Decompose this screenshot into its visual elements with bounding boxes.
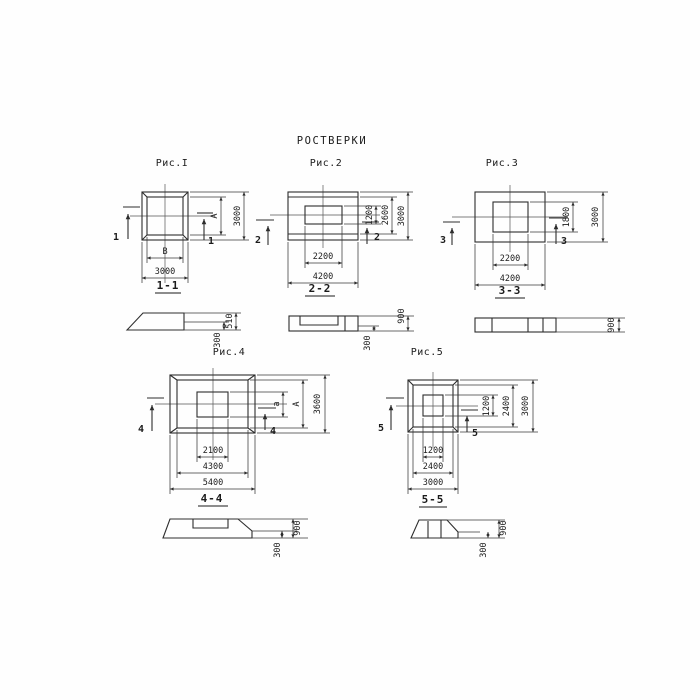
fig3-section-total-height: 900 bbox=[607, 317, 617, 332]
fig2-cut-mark-right: 2 bbox=[374, 232, 380, 243]
fig5-section-title: 5-5 bbox=[422, 493, 445, 506]
fig4-section-view: 300 900 bbox=[163, 519, 308, 558]
fig3-cut-mark-left: 3 bbox=[440, 235, 446, 246]
fig1-dim-outer-height: 3000 bbox=[233, 206, 243, 226]
fig1-section-profile bbox=[127, 313, 184, 330]
fig4-dim-mid-width: 4300 bbox=[203, 462, 223, 472]
fig5-cut-mark-left: 5 bbox=[378, 423, 384, 434]
fig1-section-edge-height: 300 bbox=[213, 332, 223, 347]
fig5-cut-marks: 5 5 bbox=[378, 398, 478, 439]
fig5-dim-outer-width: 3000 bbox=[423, 478, 443, 488]
fig1-section-view: 300 510 bbox=[127, 313, 241, 348]
fig5-section-edge-height: 300 bbox=[479, 542, 489, 557]
fig1-caption: Рис.I bbox=[156, 158, 189, 169]
rostverki-drawing: РОСТВЕРКИ Рис.I А 3000 В bbox=[0, 0, 700, 700]
fig2-section-profile bbox=[289, 316, 358, 331]
fig3: Рис.3 1800 3000 2200 4200 3 bbox=[440, 158, 625, 333]
fig4-section-edge-height: 300 bbox=[273, 542, 283, 557]
fig4: Рис.4 а А 3600 2100 4300 bbox=[138, 347, 330, 558]
fig2-dim-outer-width: 4200 bbox=[313, 272, 333, 282]
fig2-section-edge-height: 300 bbox=[363, 335, 373, 350]
fig3-caption: Рис.3 bbox=[486, 158, 519, 169]
fig1-section-title: 1-1 bbox=[157, 279, 180, 292]
fig1-dim-outer-width: 3000 bbox=[155, 267, 175, 277]
fig5-section-profile bbox=[411, 520, 458, 538]
fig4-dim-outer-height: 3600 bbox=[313, 394, 323, 414]
fig2-dim-inner-width: 2200 bbox=[313, 252, 333, 262]
fig2-dim-outer-height: 3000 bbox=[397, 206, 407, 226]
fig4-dim-inner-height: а bbox=[272, 401, 282, 406]
fig2-dim-mid-height: 2600 bbox=[381, 205, 391, 225]
fig1-dim-inner-height: А bbox=[210, 213, 220, 218]
fig2-section-view: 300 900 bbox=[289, 308, 414, 350]
fig1-cut-mark-right: 1 bbox=[208, 236, 214, 247]
fig5-section-total-height: 900 bbox=[499, 520, 509, 535]
fig2: Рис.2 1200 2600 3000 2200 4200 bbox=[255, 158, 414, 351]
fig2-section-total-height: 900 bbox=[397, 308, 407, 323]
fig2-caption: Рис.2 bbox=[310, 158, 343, 169]
fig4-recess-contour bbox=[197, 392, 228, 417]
fig3-dim-outer-height: 3000 bbox=[591, 207, 601, 227]
fig1-cut-marks: 1 1 bbox=[113, 207, 214, 247]
fig4-dim-inner-width: 2100 bbox=[203, 446, 223, 456]
fig3-section-title: 3-3 bbox=[499, 284, 522, 297]
fig5-cut-mark-right: 5 bbox=[472, 428, 478, 439]
fig2-plan bbox=[270, 185, 380, 248]
fig1-dimensions: А 3000 В 3000 bbox=[142, 192, 249, 283]
fig2-cut-mark-left: 2 bbox=[255, 235, 261, 246]
fig5-dim-mid-width: 2400 bbox=[423, 462, 443, 472]
fig3-dim-inner-height: 1800 bbox=[562, 207, 572, 227]
drawing-sheet: РОСТВЕРКИ Рис.I А 3000 В bbox=[0, 0, 700, 700]
fig2-section-title: 2-2 bbox=[309, 282, 332, 295]
fig5-dim-mid-height: 2400 bbox=[502, 396, 512, 416]
fig1-cut-mark-left: 1 bbox=[113, 232, 119, 243]
fig3-section-profile bbox=[475, 318, 556, 332]
fig1-section-total-height: 510 bbox=[225, 313, 235, 328]
fig4-section-title: 4-4 bbox=[201, 492, 224, 505]
fig3-dim-inner-width: 2200 bbox=[500, 254, 520, 264]
fig5-dim-inner-height: 1200 bbox=[482, 396, 492, 416]
fig5-dim-inner-width: 1200 bbox=[423, 446, 443, 456]
fig3-section-view: 900 bbox=[475, 317, 625, 332]
fig5-dim-outer-height: 3000 bbox=[521, 396, 531, 416]
fig4-caption: Рис.4 bbox=[213, 347, 246, 358]
fig3-dim-outer-width: 4200 bbox=[500, 274, 520, 284]
fig4-cut-mark-right: 4 bbox=[270, 426, 276, 437]
fig5: Рис.5 1200 2400 3000 1200 2400 bbox=[378, 347, 538, 558]
fig5-caption: Рис.5 bbox=[411, 347, 444, 358]
fig1: Рис.I А 3000 В 3000 bbox=[113, 158, 249, 348]
fig3-cut-mark-right: 3 bbox=[561, 236, 567, 247]
fig3-dimensions: 1800 3000 2200 4200 bbox=[475, 192, 608, 290]
sheet-title: РОСТВЕРКИ bbox=[297, 135, 367, 147]
fig4-dim-outer-width: 5400 bbox=[203, 478, 223, 488]
fig4-section-total-height: 900 bbox=[293, 520, 303, 535]
fig4-dim-mid-height: А bbox=[292, 401, 302, 406]
fig4-dimensions: а А 3600 2100 4300 5400 bbox=[170, 375, 330, 494]
fig1-dim-inner-width: В bbox=[162, 247, 167, 257]
fig4-cut-mark-left: 4 bbox=[138, 424, 144, 435]
fig5-section-view: 300 900 bbox=[411, 520, 509, 558]
